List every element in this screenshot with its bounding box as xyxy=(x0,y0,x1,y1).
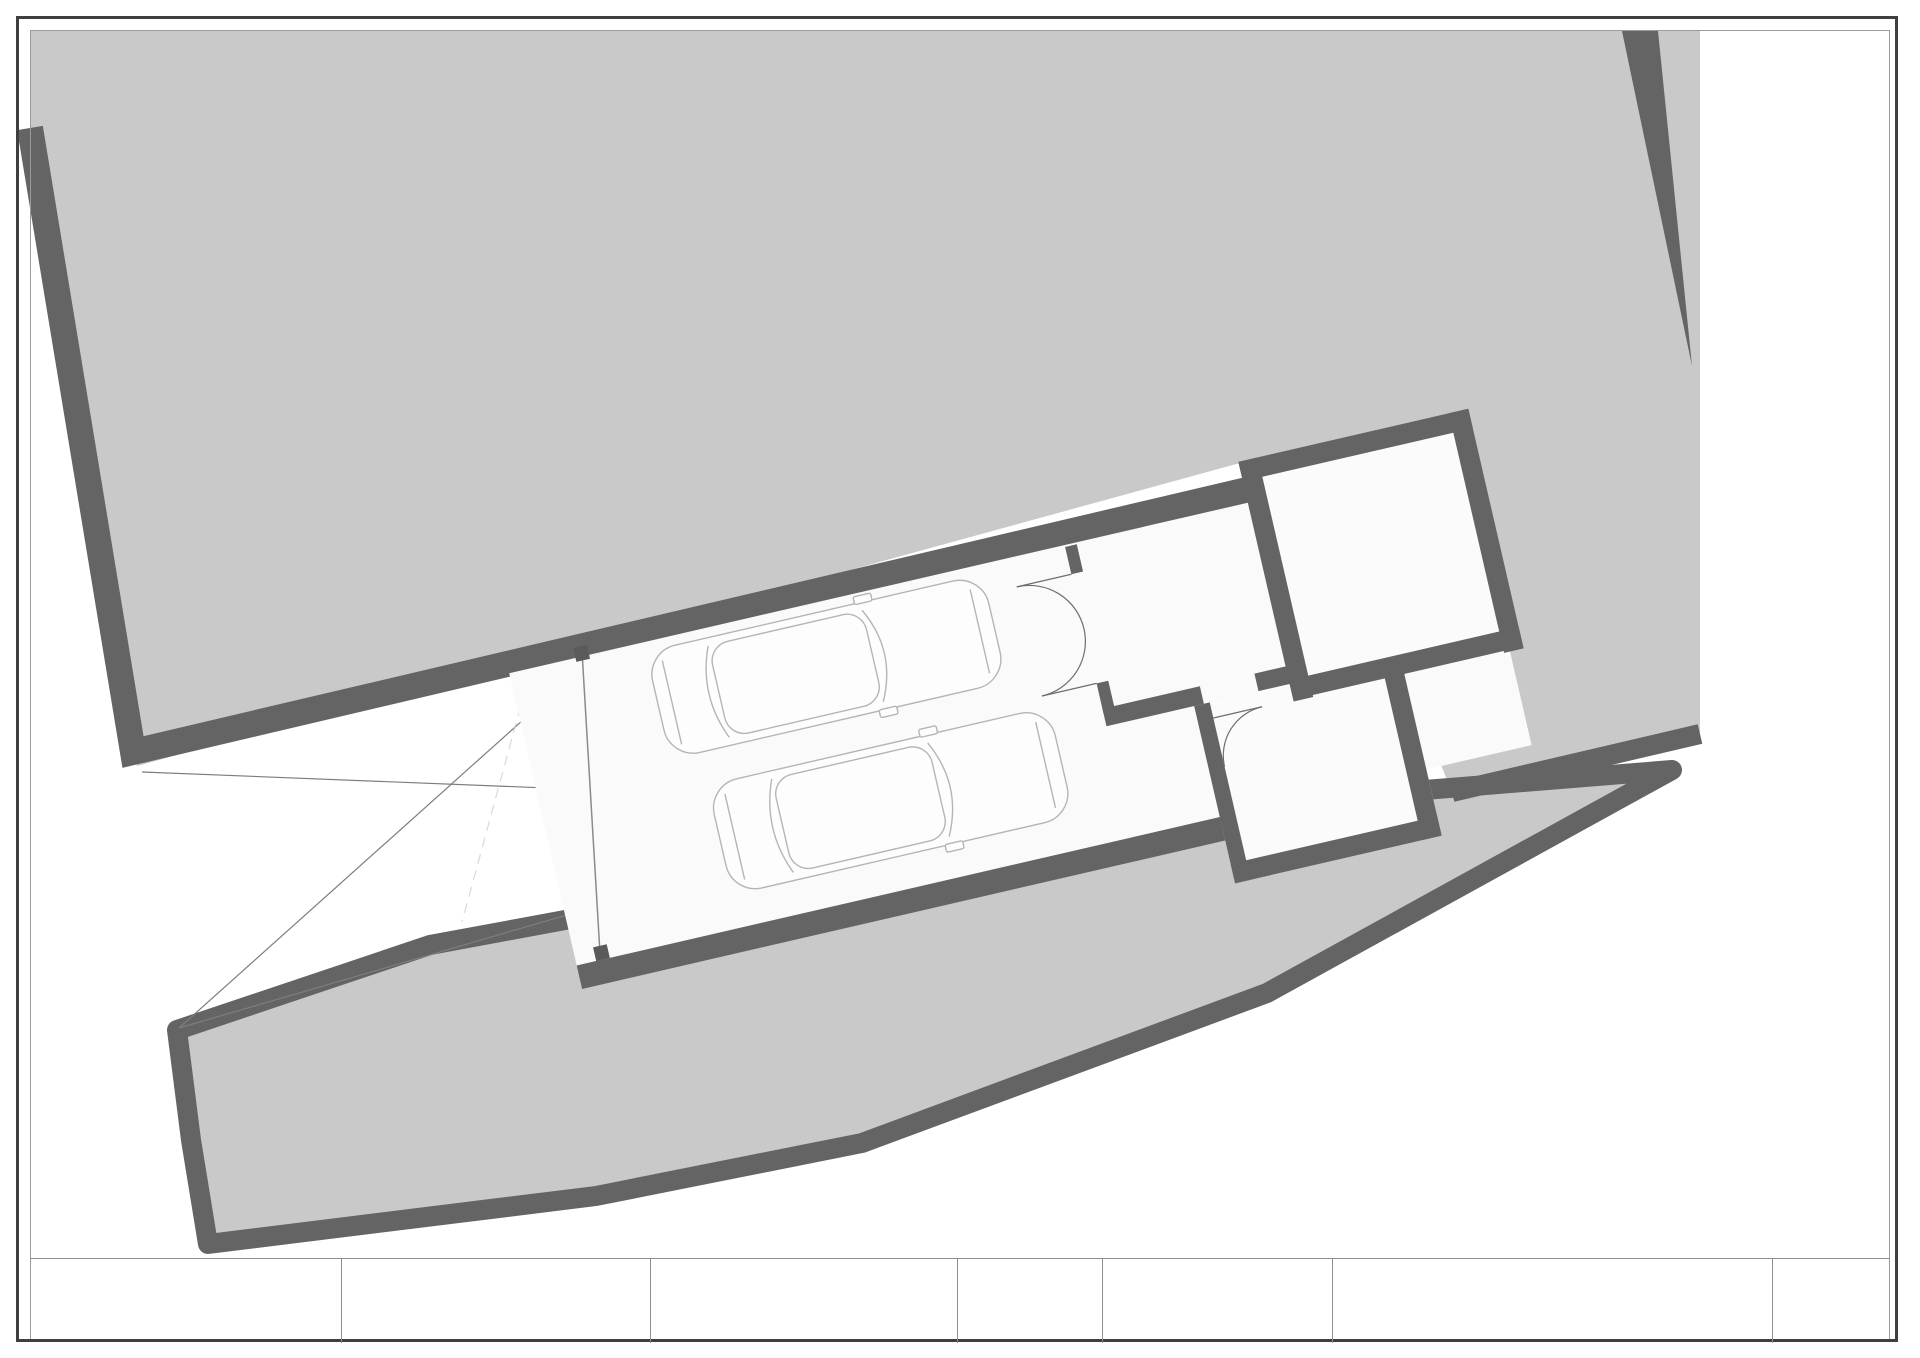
title-block xyxy=(30,1258,1890,1342)
titleblock-cliente-cell xyxy=(342,1259,651,1343)
titleblock-numero-cell xyxy=(1773,1259,1890,1343)
titleblock-proyecto-cell xyxy=(30,1259,342,1343)
titleblock-plano-cell xyxy=(1333,1259,1773,1343)
titleblock-escala-cell xyxy=(958,1259,1103,1343)
titleblock-promotor-cell xyxy=(651,1259,958,1343)
titleblock-fecha-cell xyxy=(1103,1259,1333,1343)
floor-plan-drawing xyxy=(0,0,1920,1258)
